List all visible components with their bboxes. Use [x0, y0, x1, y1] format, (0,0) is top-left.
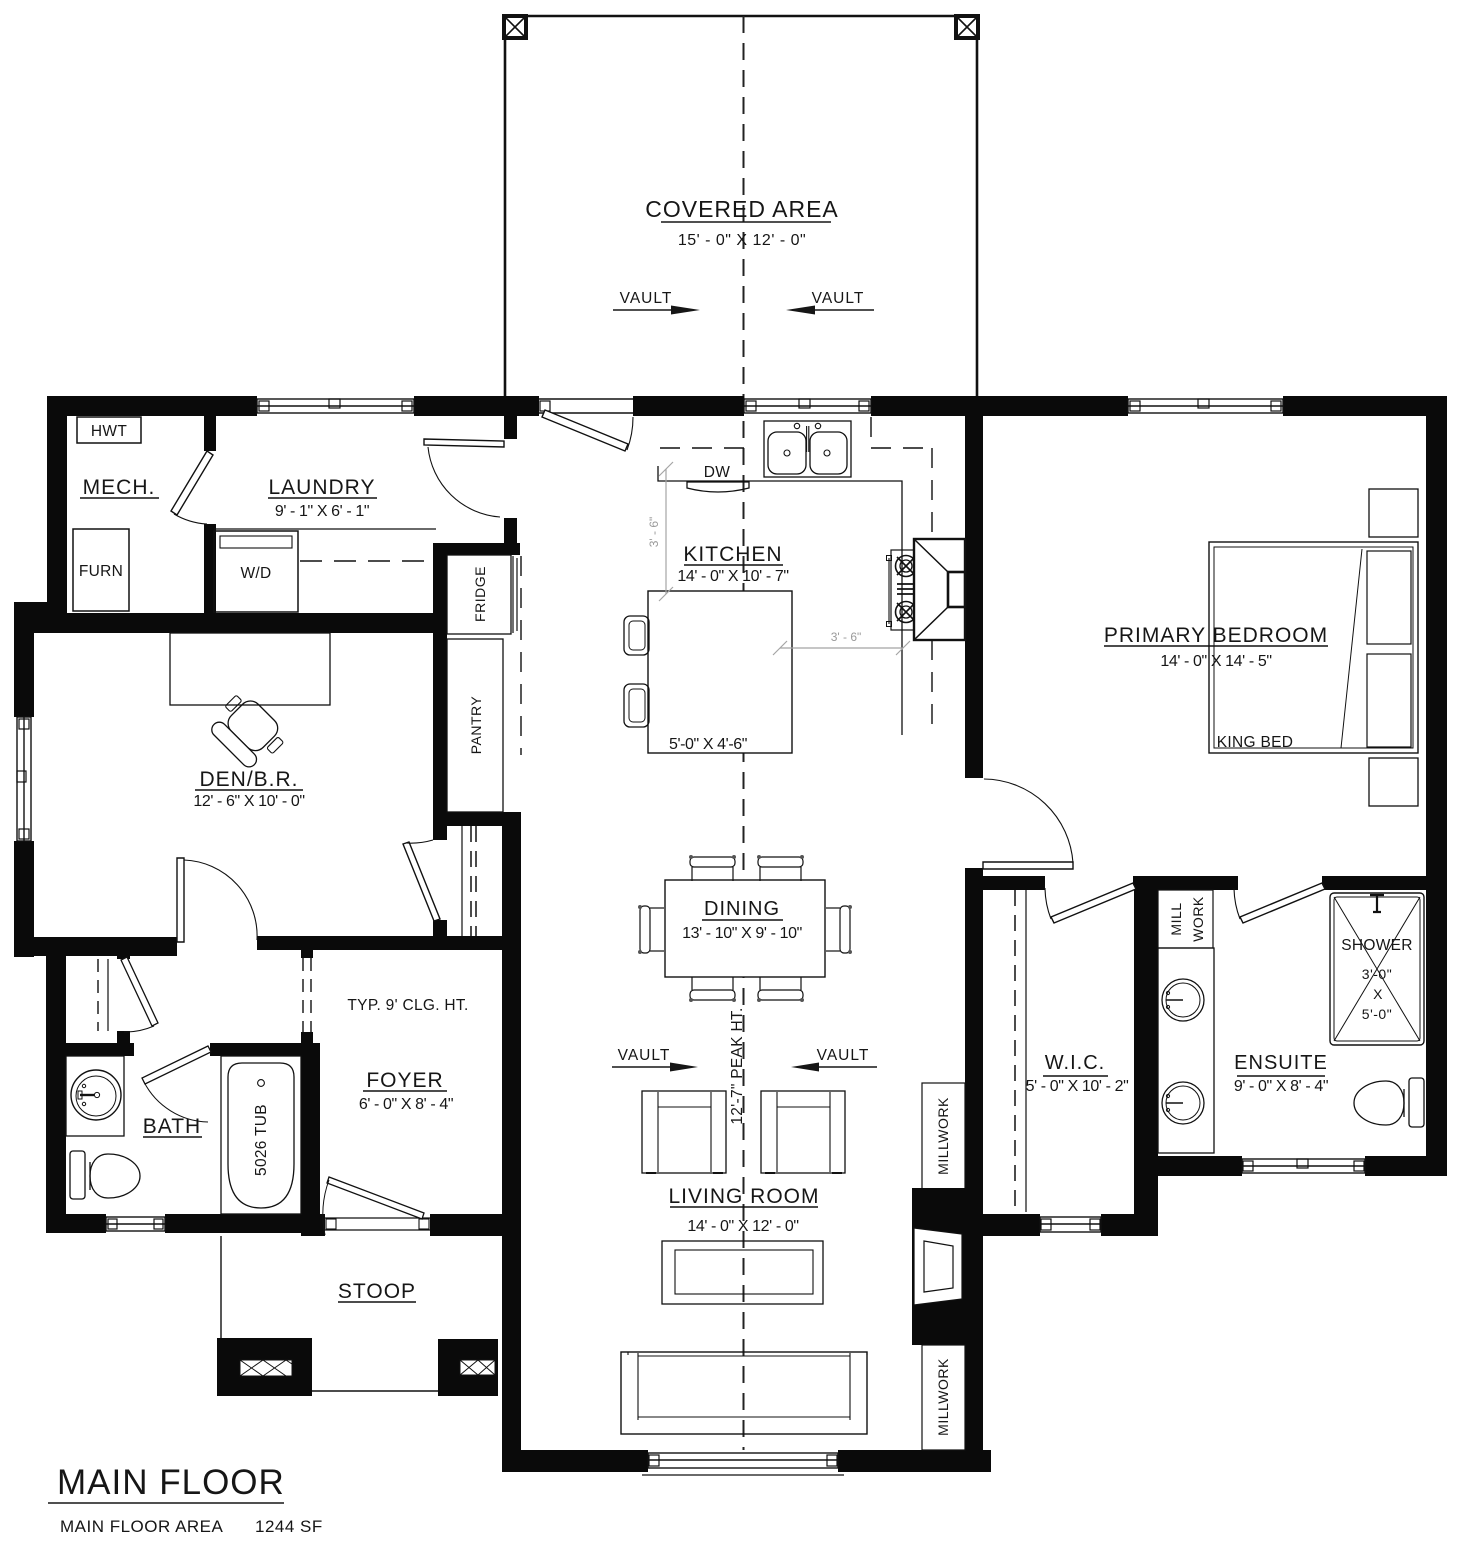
svg-text:COVERED AREA: COVERED AREA [645, 196, 839, 222]
svg-text:9' - 0" X 8' - 4": 9' - 0" X 8' - 4" [1234, 1078, 1328, 1095]
svg-text:DW: DW [704, 464, 730, 481]
svg-text:MILL: MILL [1168, 902, 1184, 935]
svg-text:X: X [1373, 986, 1383, 1002]
svg-text:5'-0": 5'-0" [1362, 1006, 1392, 1022]
svg-text:DEN/B.R.: DEN/B.R. [199, 768, 298, 791]
svg-text:3' - 6": 3' - 6" [647, 517, 661, 548]
svg-text:13' - 10" X 9' - 10": 13' - 10" X 9' - 10" [682, 925, 802, 942]
svg-text:5'-0" X 4'-6": 5'-0" X 4'-6" [669, 736, 747, 753]
svg-text:MAIN FLOOR: MAIN FLOOR [57, 1463, 285, 1502]
svg-text:DINING: DINING [704, 898, 780, 920]
svg-text:VAULT: VAULT [620, 290, 673, 307]
svg-text:9' - 1" X 6' - 1": 9' - 1" X 6' - 1" [275, 503, 369, 520]
svg-text:VAULT: VAULT [817, 1047, 870, 1064]
svg-text:5026 TUB: 5026 TUB [253, 1104, 270, 1176]
svg-text:WORK: WORK [1190, 896, 1206, 942]
svg-text:VAULT: VAULT [812, 290, 865, 307]
svg-text:3'-0": 3'-0" [1362, 966, 1392, 982]
svg-text:MILLWORK: MILLWORK [935, 1358, 951, 1436]
svg-text:HWT: HWT [91, 423, 127, 440]
svg-text:3' - 6": 3' - 6" [831, 630, 862, 644]
svg-text:6' - 0" X 8' - 4": 6' - 0" X 8' - 4" [359, 1096, 453, 1113]
svg-text:5' - 0" X 10' - 2": 5' - 0" X 10' - 2" [1026, 1078, 1129, 1095]
svg-text:1244 SF: 1244 SF [255, 1517, 323, 1536]
svg-text:VAULT: VAULT [618, 1047, 671, 1064]
svg-text:BATH: BATH [143, 1115, 201, 1138]
svg-text:15' - 0" X 12' - 0": 15' - 0" X 12' - 0" [678, 232, 806, 249]
svg-text:MILLWORK: MILLWORK [935, 1097, 951, 1175]
svg-text:ENSUITE: ENSUITE [1234, 1052, 1328, 1074]
svg-text:KING BED: KING BED [1217, 734, 1293, 751]
svg-text:PRIMARY BEDROOM: PRIMARY BEDROOM [1104, 624, 1328, 647]
svg-text:SHOWER: SHOWER [1341, 937, 1413, 954]
svg-text:14' - 0" X 12' - 0": 14' - 0" X 12' - 0" [687, 1218, 798, 1235]
svg-text:FRIDGE: FRIDGE [472, 566, 488, 622]
svg-text:12'-7" PEAK HT.: 12'-7" PEAK HT. [729, 1007, 746, 1124]
svg-text:W.I.C.: W.I.C. [1045, 1052, 1105, 1074]
svg-text:MAIN FLOOR AREA: MAIN FLOOR AREA [60, 1517, 224, 1536]
svg-text:W/D: W/D [240, 565, 271, 582]
svg-text:LAUNDRY: LAUNDRY [269, 476, 376, 499]
svg-text:STOOP: STOOP [338, 1280, 416, 1303]
svg-text:FOYER: FOYER [366, 1069, 443, 1092]
svg-text:LIVING ROOM: LIVING ROOM [668, 1185, 819, 1208]
svg-text:PANTRY: PANTRY [468, 696, 484, 755]
svg-text:14' - 0" X 10' - 7": 14' - 0" X 10' - 7" [677, 568, 788, 585]
svg-text:14' - 0" X 14' - 5": 14' - 0" X 14' - 5" [1160, 653, 1271, 670]
svg-text:FURN: FURN [79, 563, 123, 580]
svg-text:KITCHEN: KITCHEN [683, 543, 782, 566]
svg-text:12' - 6" X 10' - 0": 12' - 6" X 10' - 0" [193, 793, 304, 810]
svg-text:MECH.: MECH. [83, 476, 156, 499]
svg-text:TYP. 9' CLG. HT.: TYP. 9' CLG. HT. [347, 997, 468, 1014]
